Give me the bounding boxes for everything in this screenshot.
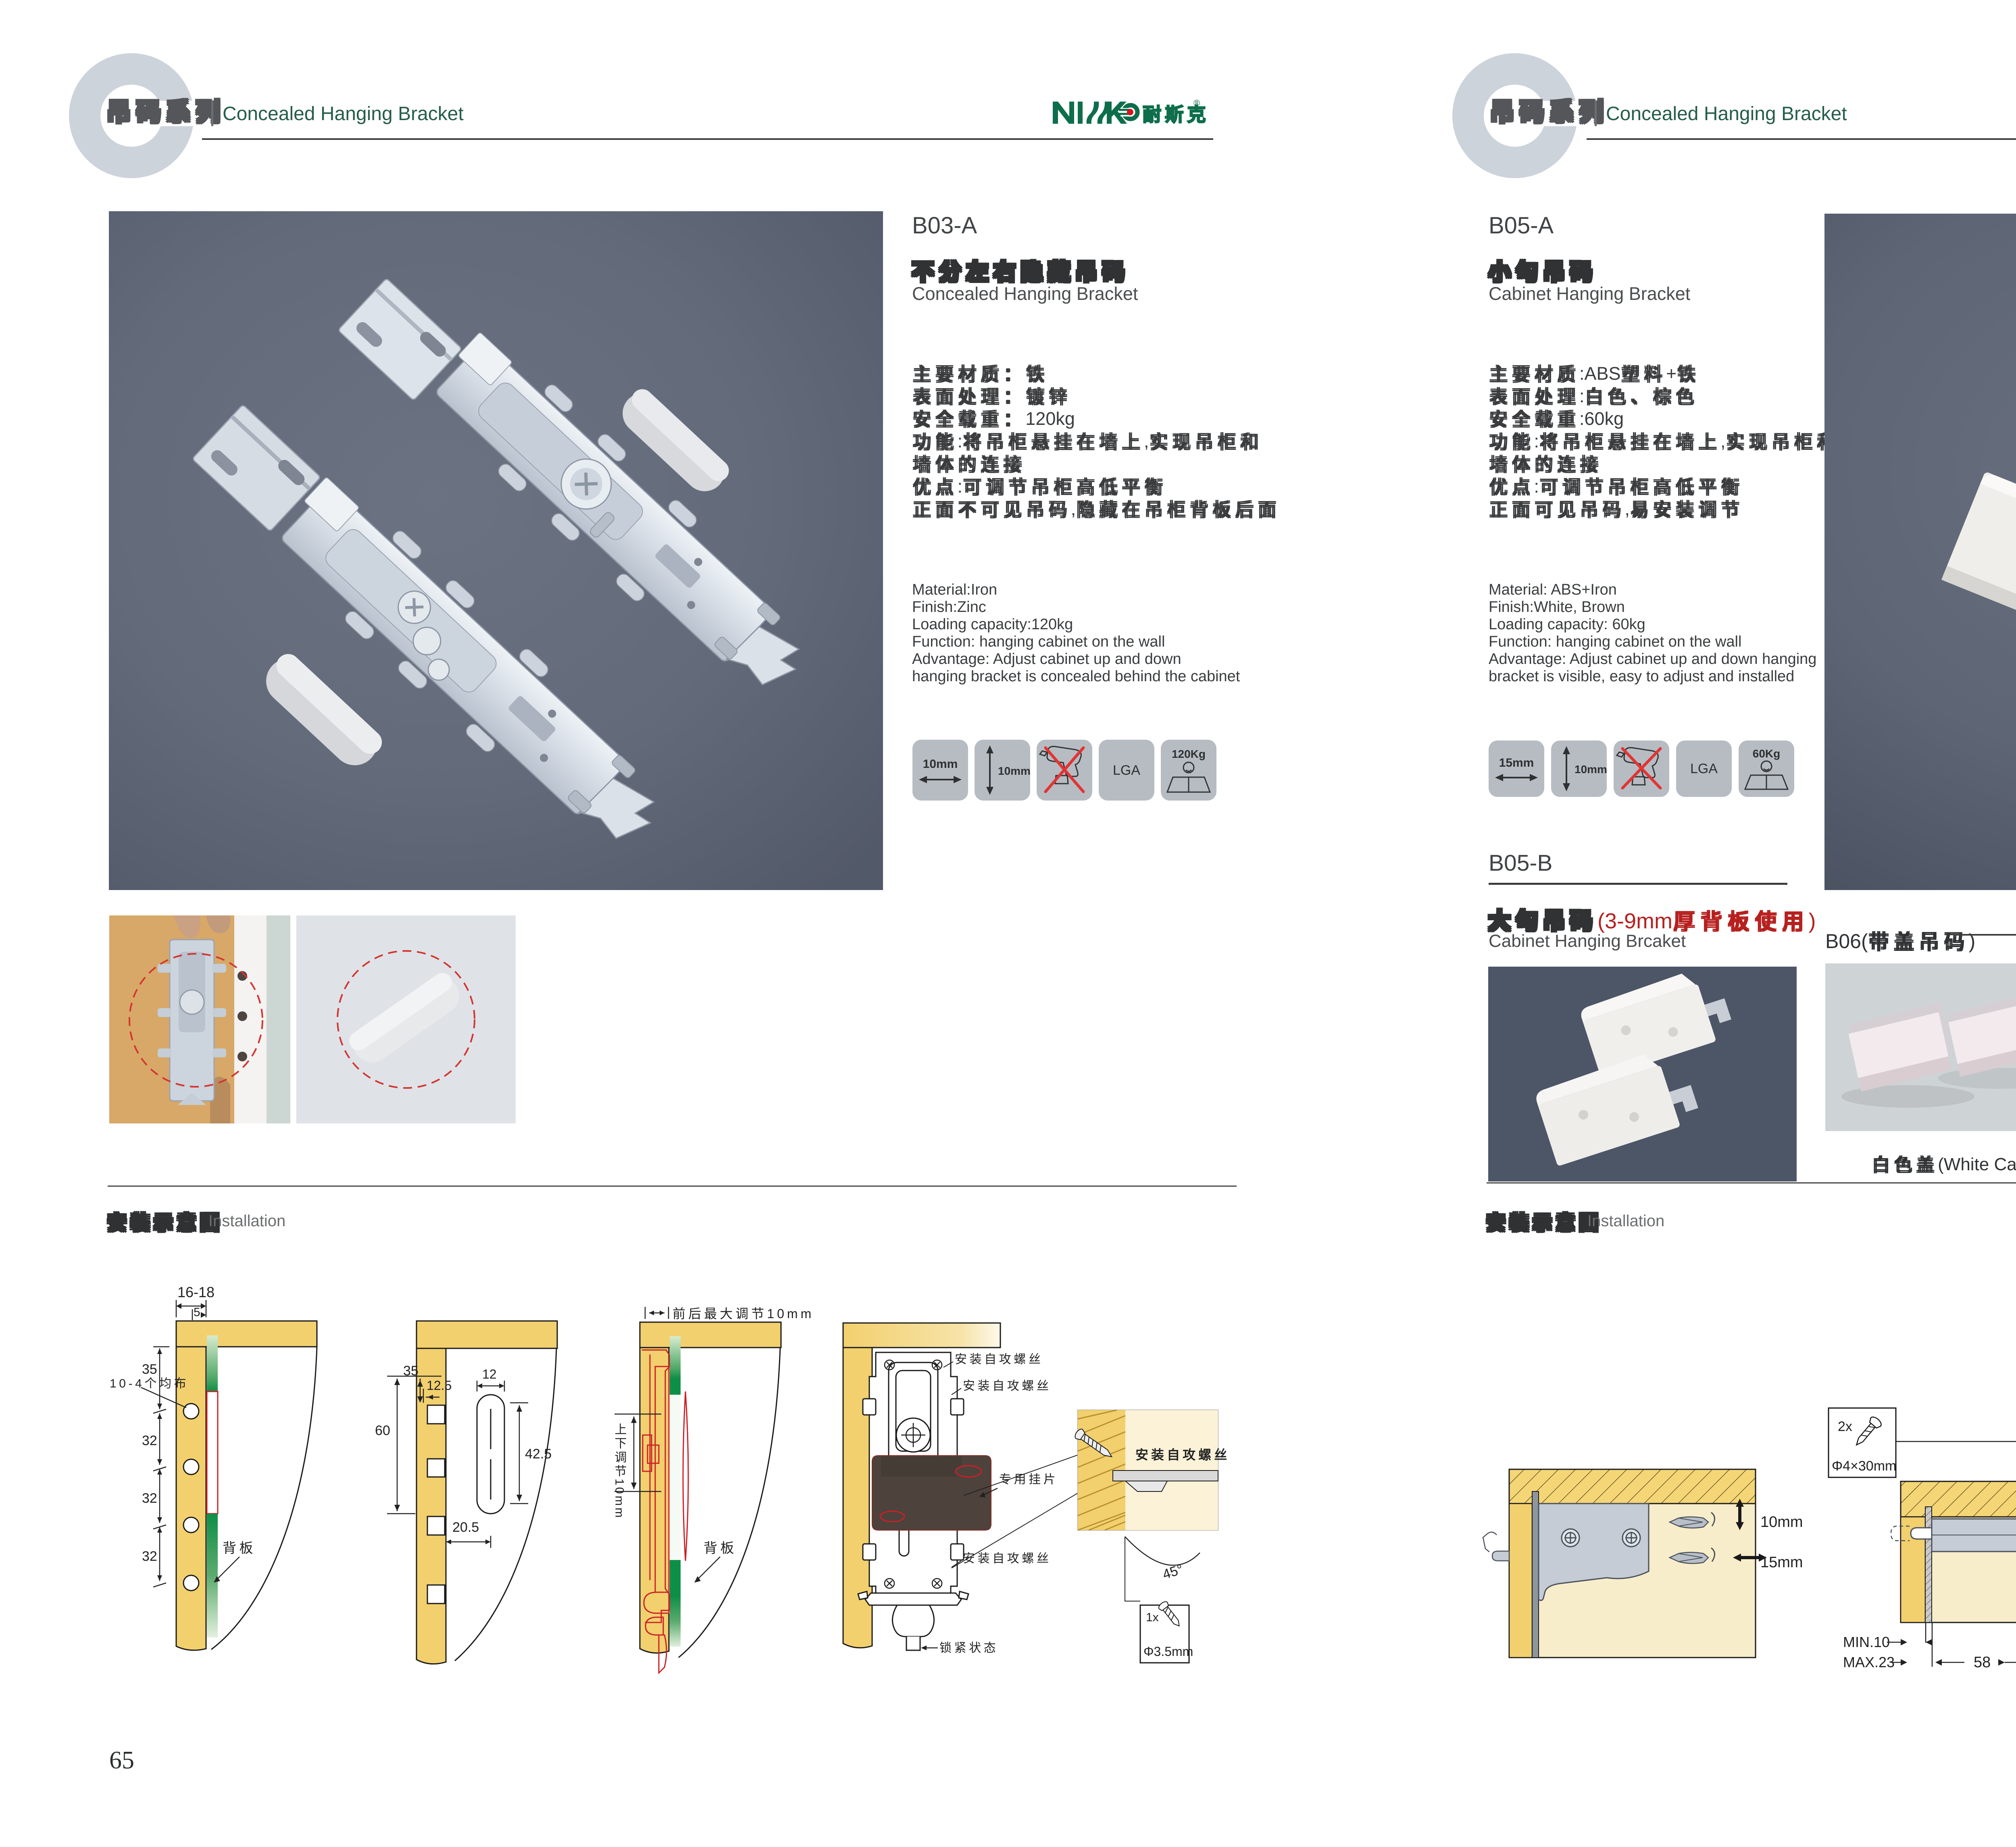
svg-text:15mm: 15mm [1499,756,1534,770]
svg-text:10mm: 10mm [923,757,958,771]
svg-text:60Kg: 60Kg [1753,747,1780,760]
svg-text:背板: 背板 [704,1541,737,1556]
svg-text:背板: 背板 [223,1541,256,1556]
svg-text:12: 12 [482,1367,497,1381]
svg-text:12.5: 12.5 [427,1378,452,1393]
svg-text:32: 32 [142,1433,157,1448]
svg-text:安装自攻螺丝: 安装自攻螺丝 [963,1379,1052,1393]
svg-text:120Kg: 120Kg [1172,748,1206,760]
svg-text:MAX.23: MAX.23 [1843,1654,1895,1670]
svg-text:上下调节10mm: 上下调节10mm [613,1423,627,1519]
svg-text:LGA: LGA [1690,761,1718,776]
svg-text:10-4个均布: 10-4个均布 [110,1377,189,1390]
svg-text:10mm: 10mm [1574,763,1607,776]
svg-text:2x: 2x [1838,1419,1852,1434]
svg-text:35: 35 [142,1362,157,1377]
svg-text:20.5: 20.5 [452,1520,479,1535]
svg-text:LGA: LGA [1113,763,1140,778]
svg-text:42.5: 42.5 [525,1446,552,1462]
svg-text:10mm: 10mm [1760,1514,1803,1531]
svg-text:前后最大调节10mm: 前后最大调节10mm [673,1306,814,1321]
svg-text:MIN.10: MIN.10 [1843,1634,1890,1650]
svg-text:Φ3.5mm: Φ3.5mm [1143,1644,1193,1659]
svg-text:32: 32 [142,1549,157,1564]
svg-text:58: 58 [1974,1654,1991,1671]
svg-text:10mm: 10mm [998,765,1030,777]
svg-text:1x: 1x [1146,1611,1159,1624]
svg-text:15mm: 15mm [1760,1554,1803,1571]
svg-text:安装自攻螺丝: 安装自攻螺丝 [1135,1448,1230,1462]
svg-text:35: 35 [403,1363,419,1379]
svg-text:锁紧状态: 锁紧状态 [939,1641,998,1655]
svg-text:16-18: 16-18 [177,1284,215,1300]
svg-text:60: 60 [375,1423,390,1438]
svg-text:32: 32 [142,1491,157,1506]
svg-text:5: 5 [194,1306,200,1319]
svg-text:Φ4×30mm: Φ4×30mm [1832,1458,1896,1474]
svg-text:®: ® [1193,100,1200,108]
svg-text:安装自攻螺丝: 安装自攻螺丝 [955,1353,1043,1366]
